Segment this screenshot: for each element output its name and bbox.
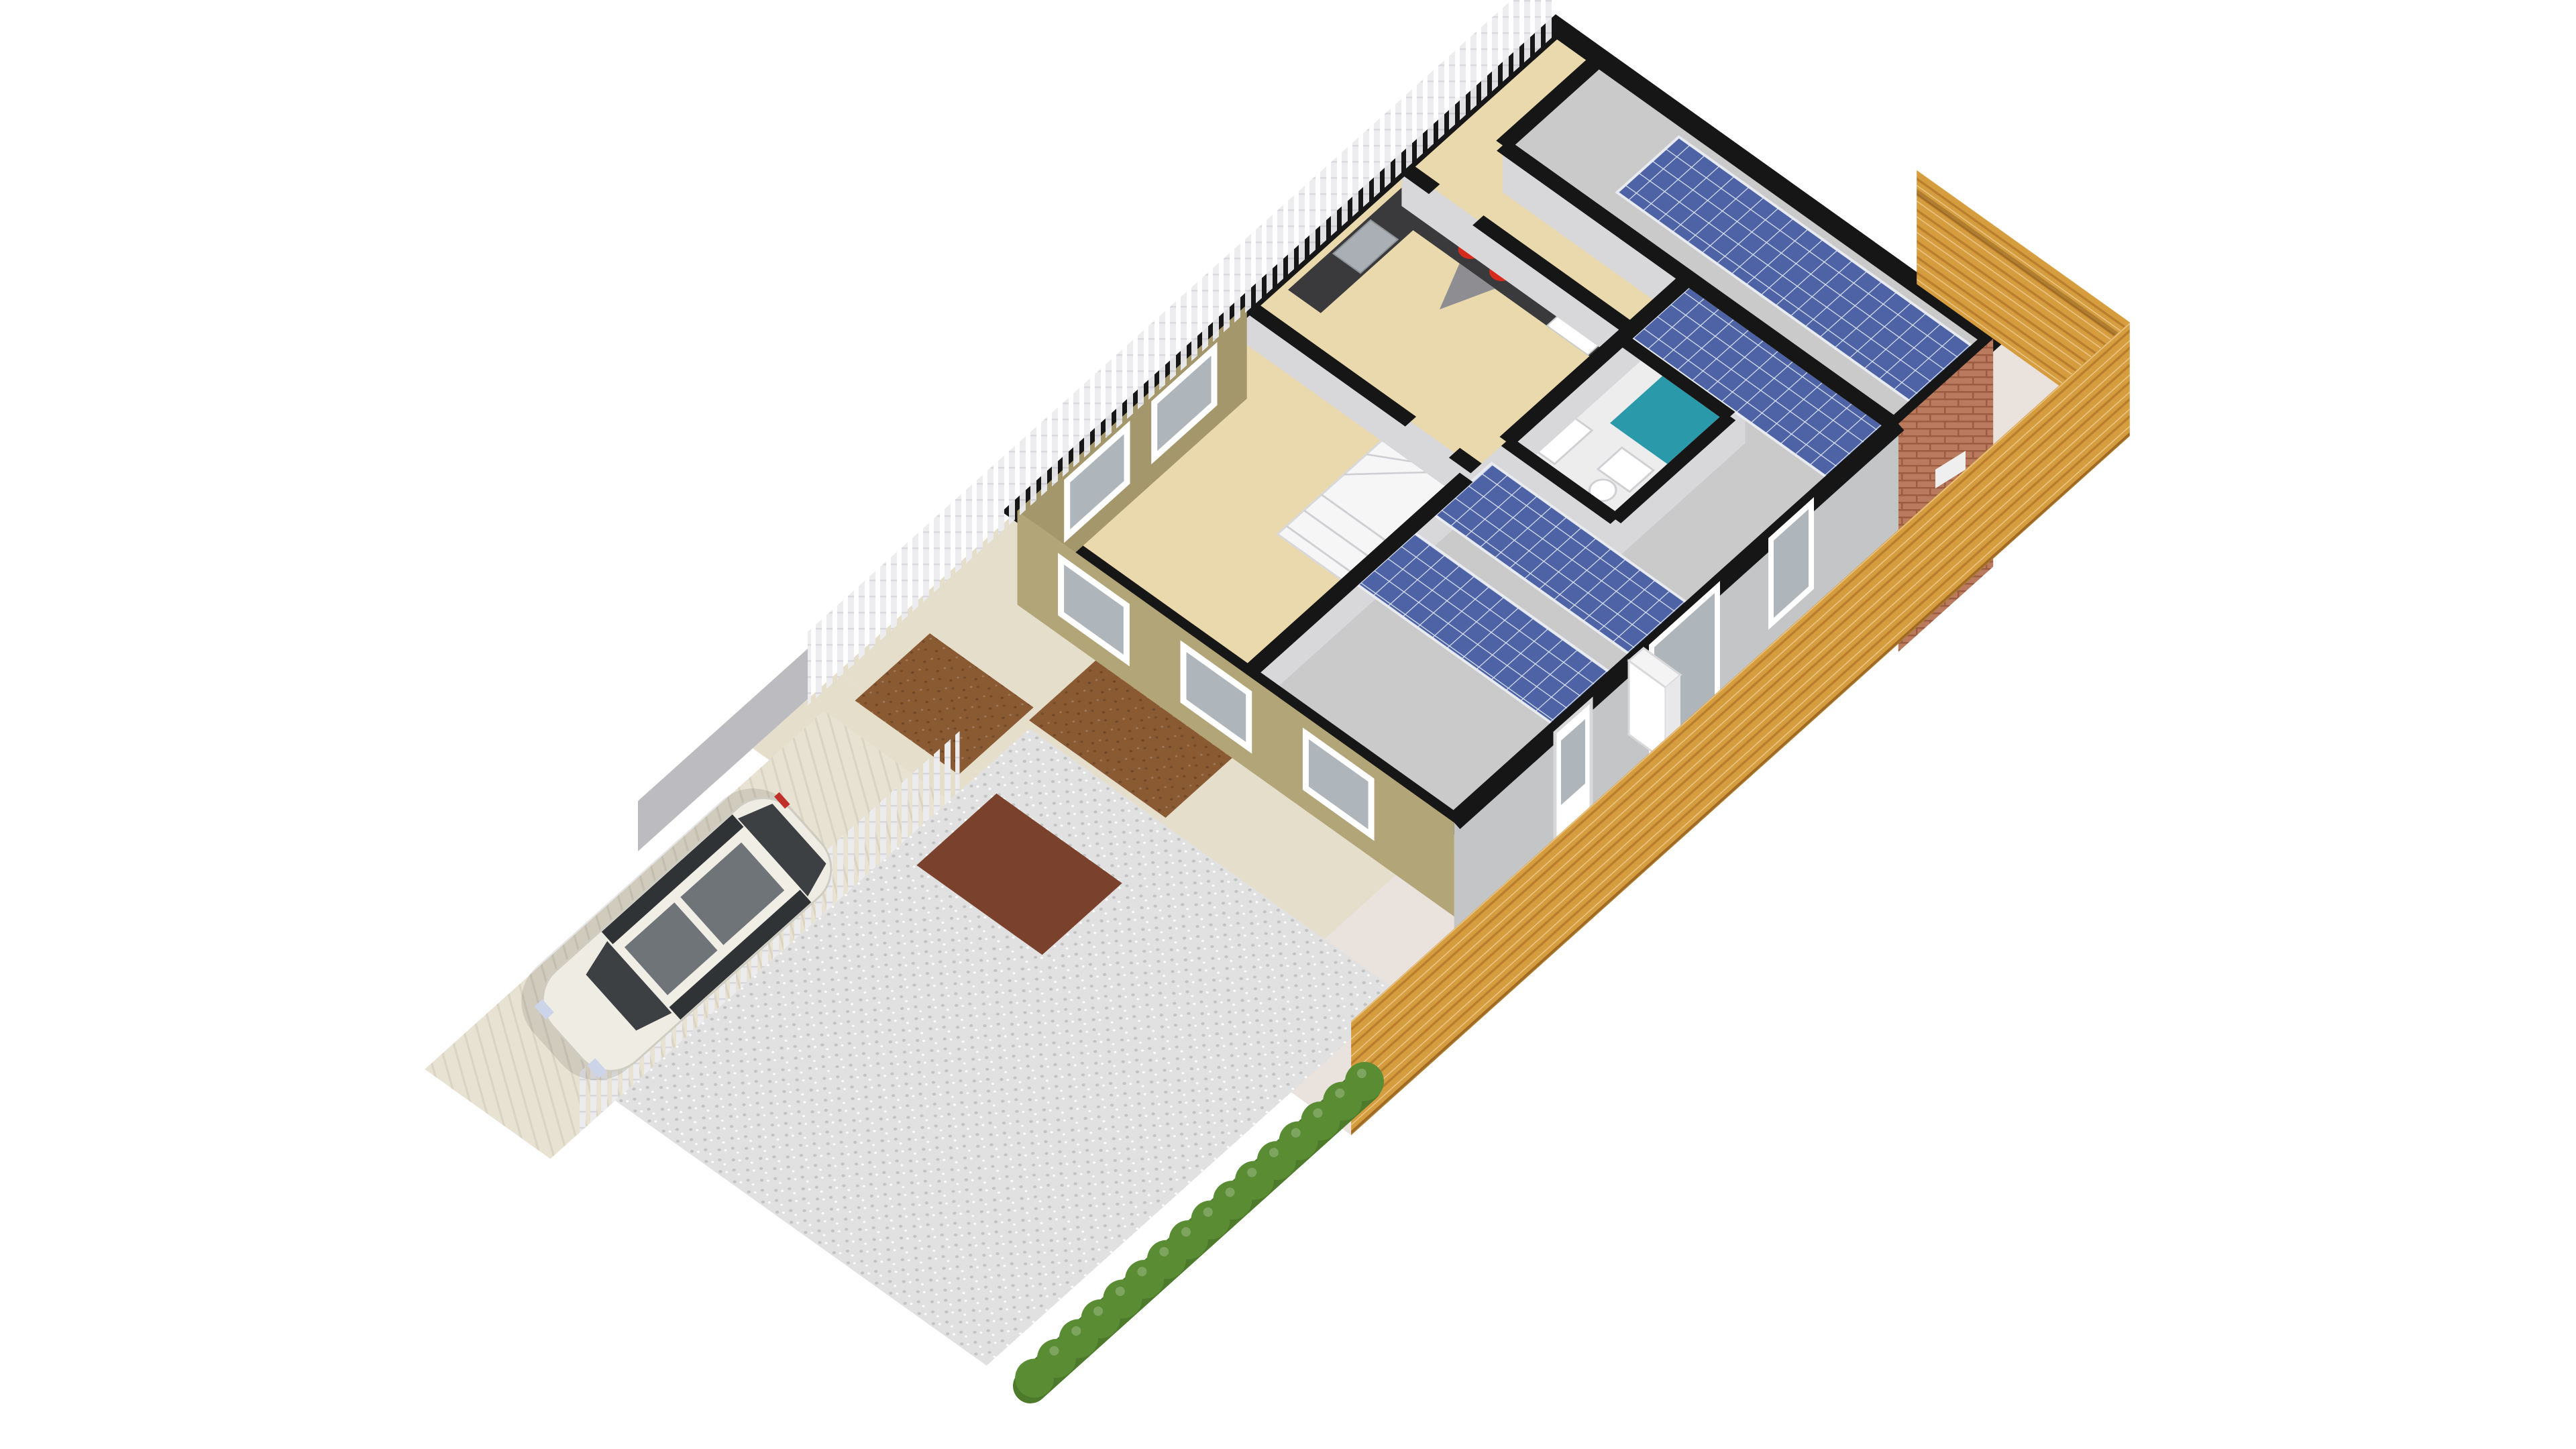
render-viewport [0, 0, 2576, 1449]
floor-plan-3d-scene [0, 0, 2576, 1449]
